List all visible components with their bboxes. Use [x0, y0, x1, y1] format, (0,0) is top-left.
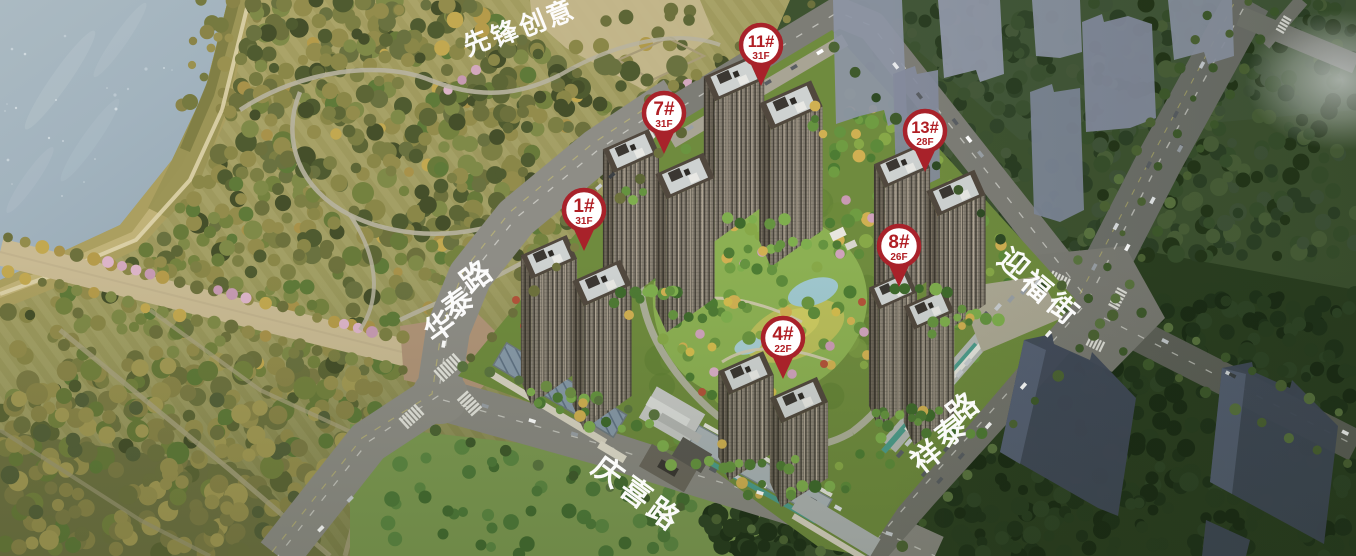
- svg-text:28F: 28F: [916, 137, 933, 148]
- svg-text:22F: 22F: [774, 344, 791, 355]
- svg-text:26F: 26F: [890, 252, 907, 263]
- svg-text:31F: 31F: [655, 119, 672, 130]
- svg-text:31F: 31F: [752, 51, 769, 62]
- svg-text:11#: 11#: [748, 33, 775, 51]
- svg-text:13#: 13#: [911, 119, 939, 137]
- svg-text:8#: 8#: [888, 232, 910, 253]
- svg-text:4#: 4#: [772, 324, 794, 345]
- svg-text:7#: 7#: [653, 99, 675, 120]
- svg-text:1#: 1#: [573, 196, 595, 217]
- svg-text:31F: 31F: [575, 216, 592, 227]
